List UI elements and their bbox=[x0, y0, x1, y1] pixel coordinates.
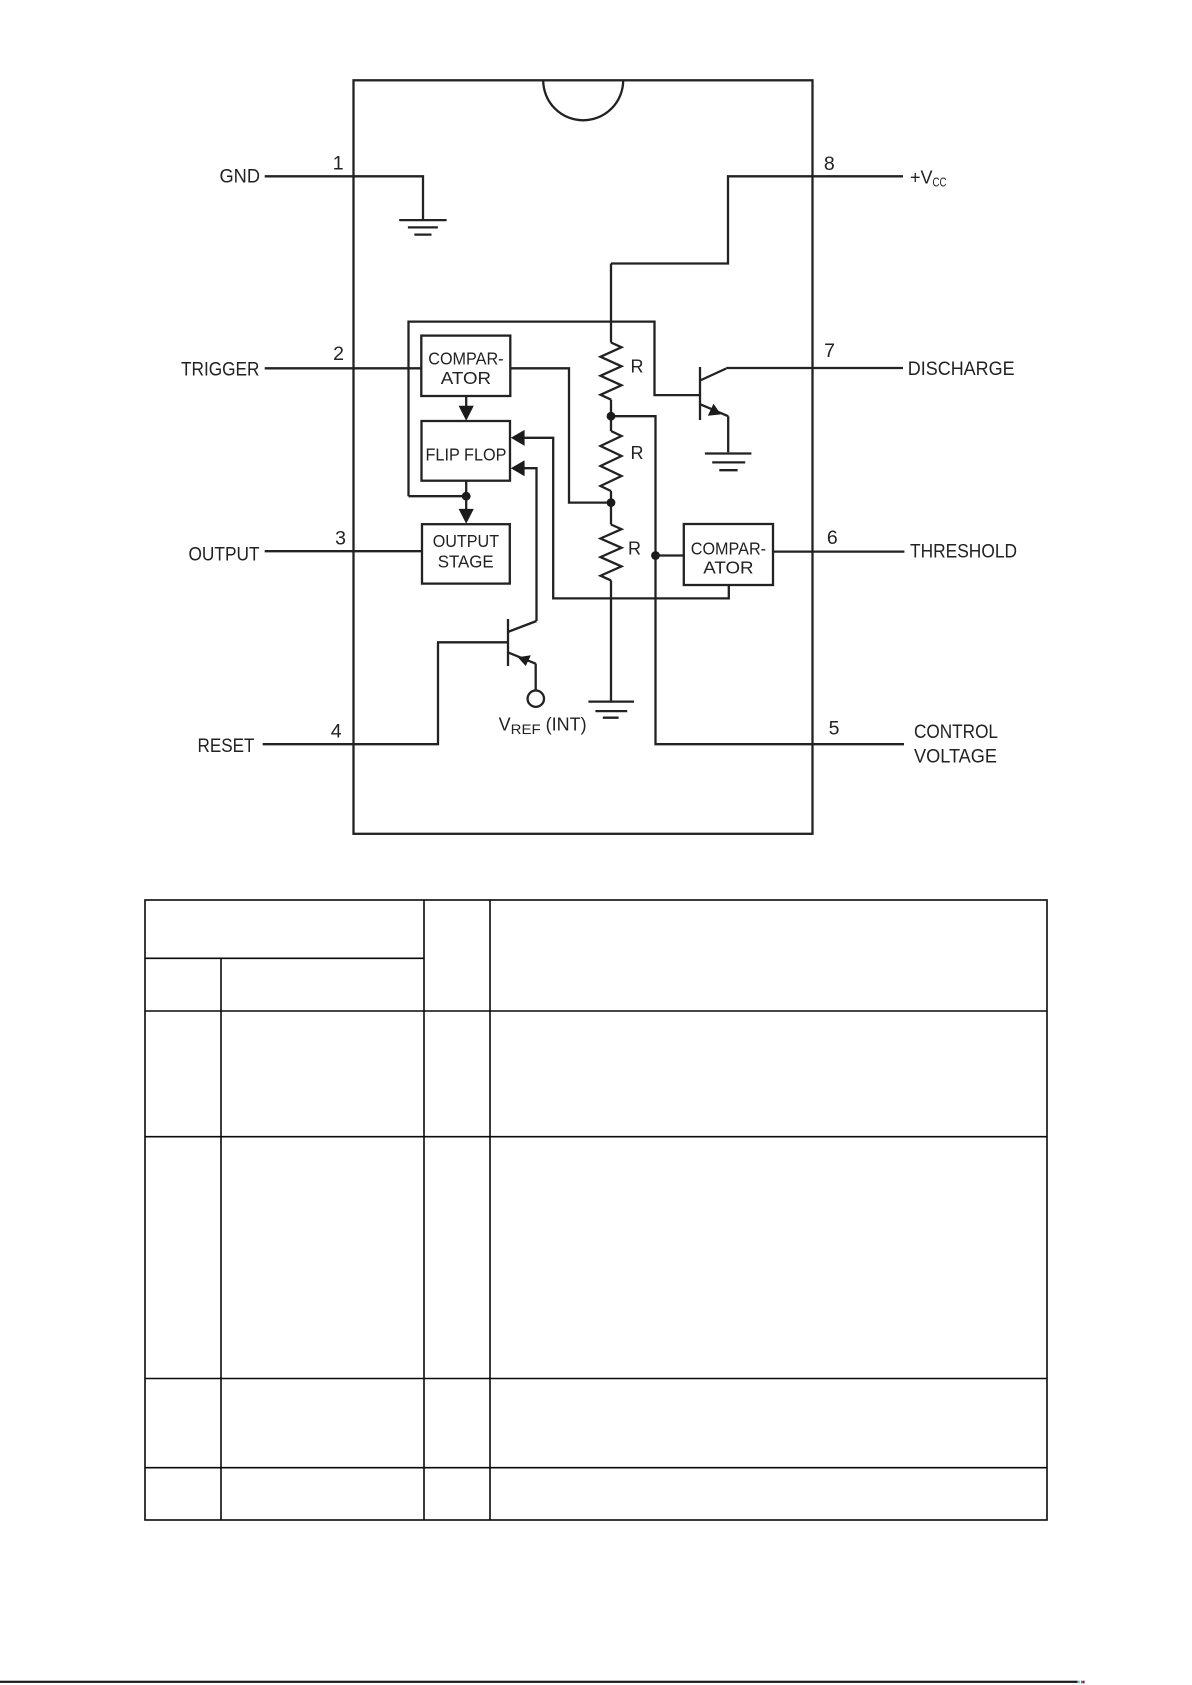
svg-text:4: 4 bbox=[331, 720, 342, 742]
svg-text:ATOR: ATOR bbox=[703, 558, 753, 578]
svg-text:OUTPUT: OUTPUT bbox=[433, 531, 500, 551]
svg-text:3: 3 bbox=[335, 527, 346, 549]
svg-text:2: 2 bbox=[333, 343, 344, 365]
svg-text:STAGE: STAGE bbox=[438, 551, 494, 571]
svg-text:OUTPUT: OUTPUT bbox=[189, 544, 260, 565]
svg-text:VOLTAGE: VOLTAGE bbox=[914, 747, 997, 768]
svg-text:1: 1 bbox=[333, 153, 344, 175]
svg-text:6: 6 bbox=[827, 527, 838, 549]
svg-text:5: 5 bbox=[829, 718, 840, 740]
svg-text:7: 7 bbox=[824, 340, 835, 362]
svg-text:8: 8 bbox=[824, 153, 835, 175]
svg-text:RESET: RESET bbox=[198, 736, 255, 757]
svg-text:THRESHOLD: THRESHOLD bbox=[910, 541, 1017, 562]
svg-text:R: R bbox=[631, 356, 644, 376]
svg-text:R: R bbox=[631, 443, 644, 463]
svg-text:CONTROL: CONTROL bbox=[914, 722, 998, 743]
svg-text:R: R bbox=[628, 538, 641, 558]
svg-text:DISCHARGE: DISCHARGE bbox=[908, 359, 1015, 380]
svg-text:TRIGGER: TRIGGER bbox=[181, 360, 260, 381]
svg-text:GND: GND bbox=[220, 167, 261, 188]
svg-text:FLIP FLOP: FLIP FLOP bbox=[426, 445, 507, 465]
svg-text:ATOR: ATOR bbox=[441, 368, 491, 388]
svg-text:COMPAR-: COMPAR- bbox=[691, 538, 766, 558]
svg-text:COMPAR-: COMPAR- bbox=[428, 349, 503, 369]
